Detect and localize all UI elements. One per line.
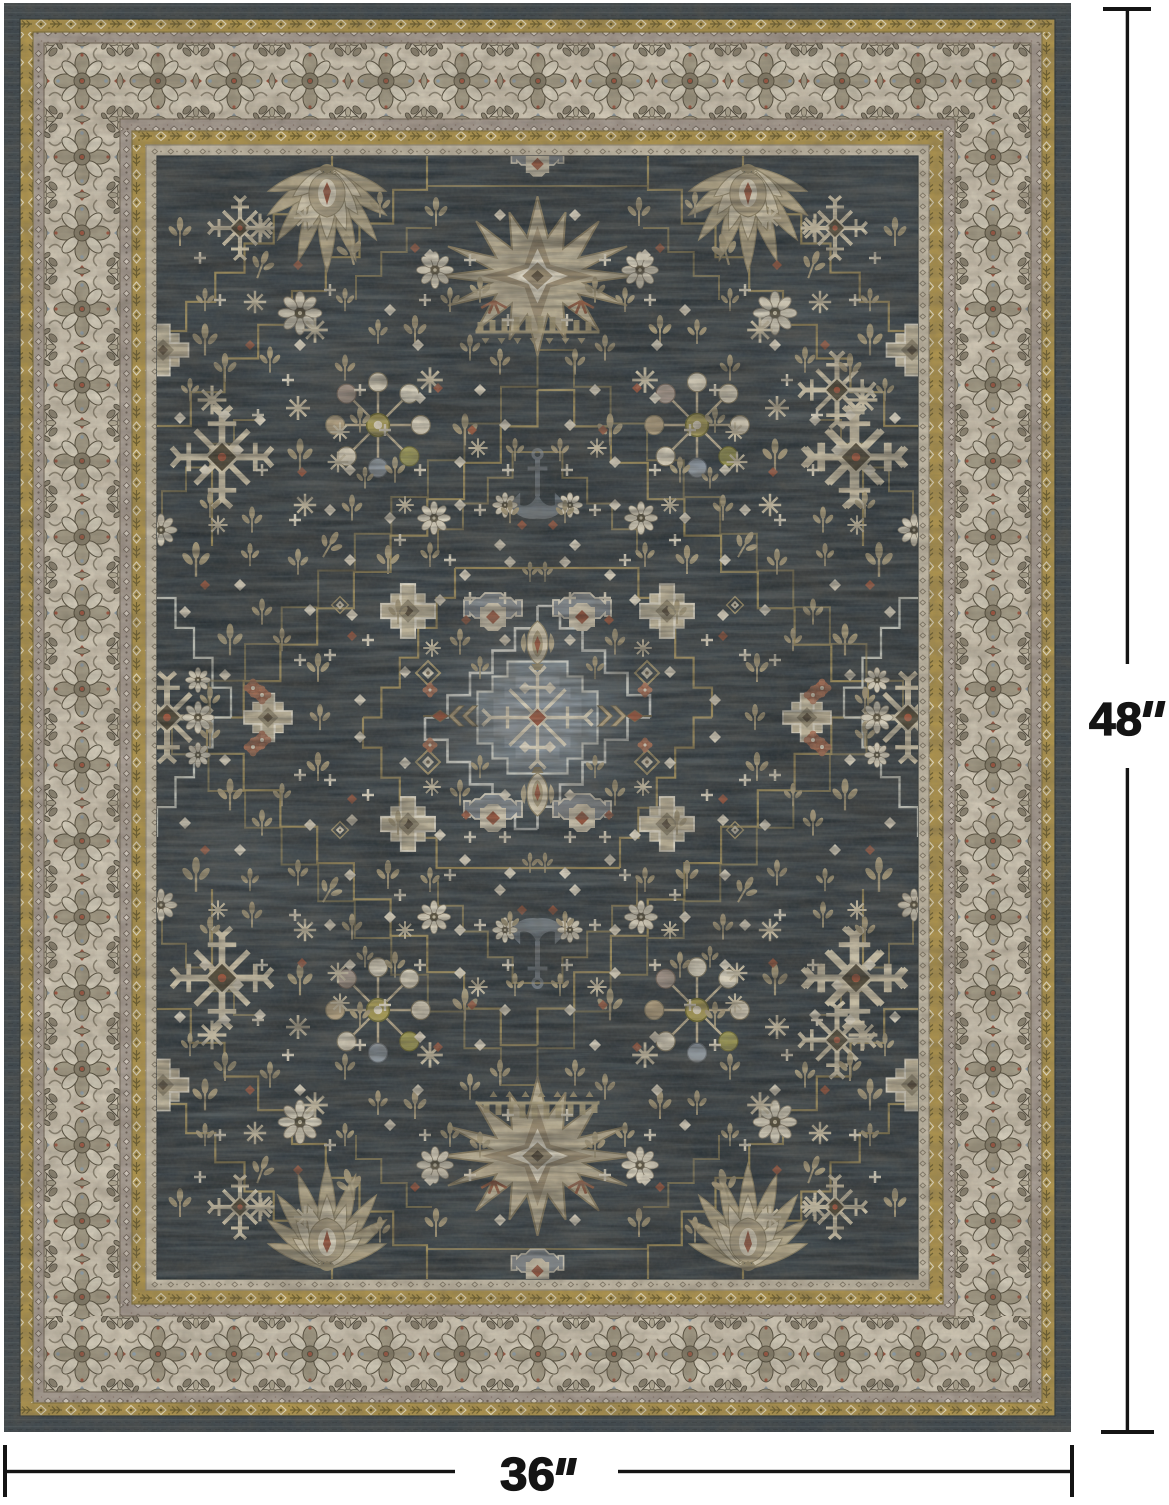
svg-text:36: 36 [500, 1448, 555, 1500]
svg-text:48: 48 [1089, 693, 1142, 745]
